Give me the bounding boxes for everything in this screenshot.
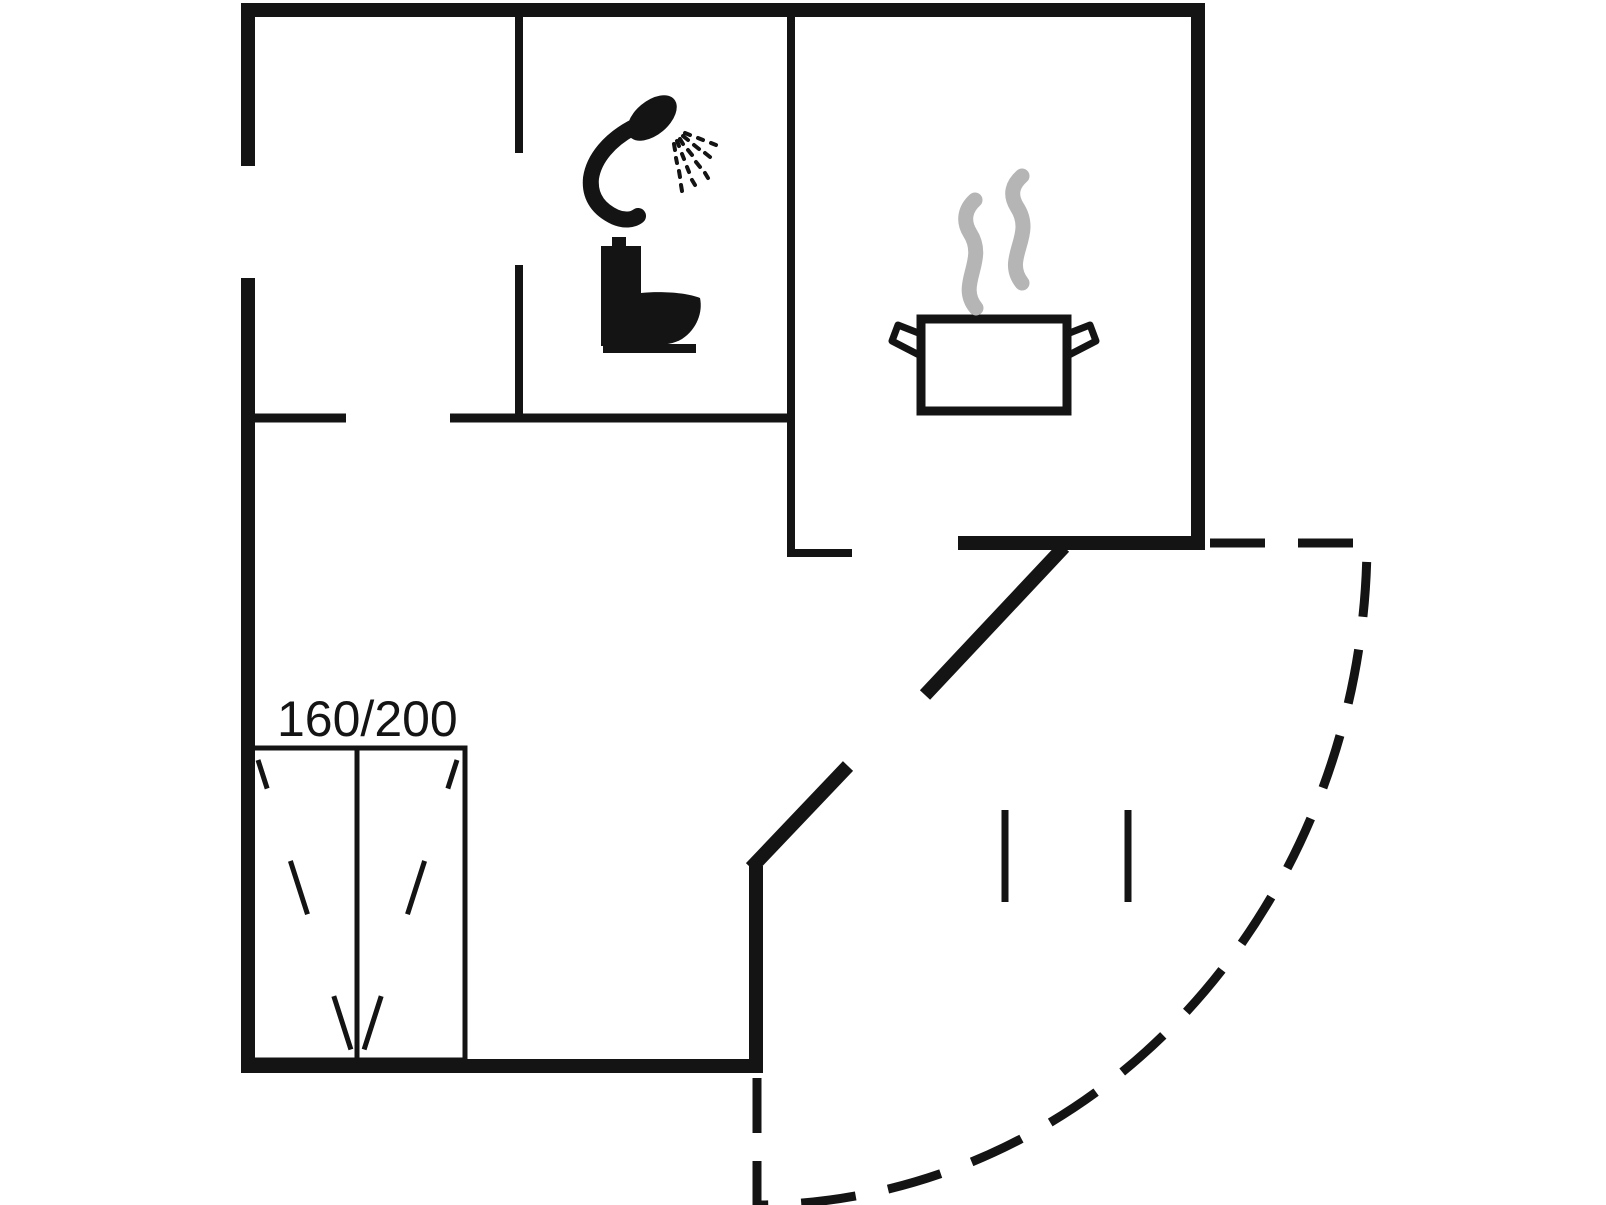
pot-body <box>921 319 1067 411</box>
bed-size-label: 160/200 <box>277 691 458 747</box>
toilet-tank <box>601 246 641 346</box>
cooking-pot-icon <box>892 319 1096 411</box>
floor-plan: 160/200 <box>0 0 1606 1205</box>
toilet-base <box>603 344 696 353</box>
floor-plan-page: 160/200 <box>0 0 1606 1205</box>
